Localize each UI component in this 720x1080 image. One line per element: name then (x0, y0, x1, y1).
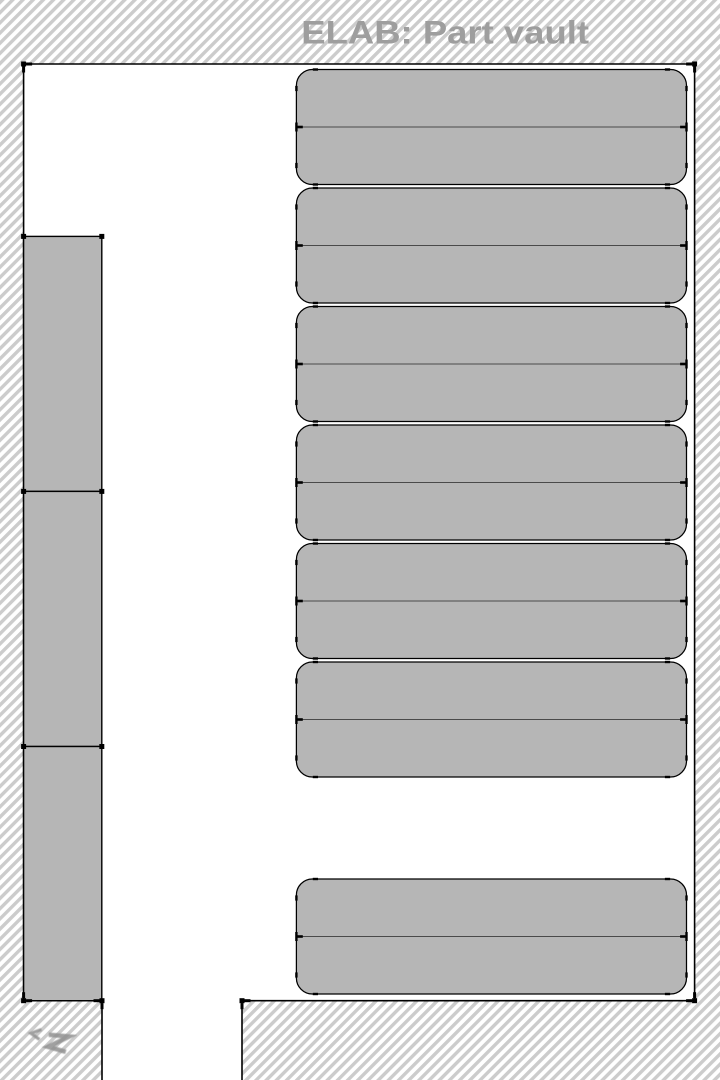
svg-text:ELAB: Part vault: ELAB: Part vault (301, 16, 589, 51)
